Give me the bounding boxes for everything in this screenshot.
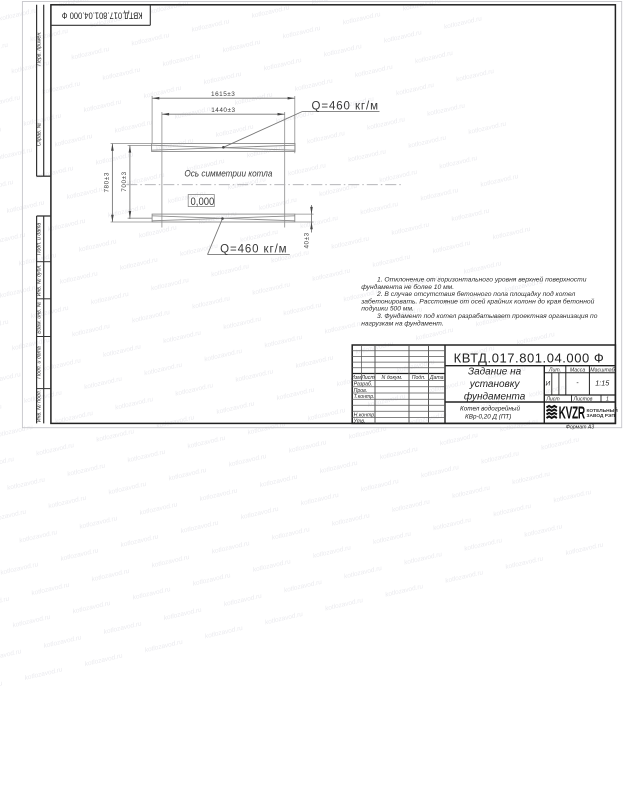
svg-text:Формат А3: Формат А3 (566, 425, 594, 430)
svg-text:700±3: 700±3 (121, 171, 128, 191)
svg-text:ЗАВОД РЭП: ЗАВОД РЭП (587, 413, 616, 419)
svg-text:Листов: Листов (573, 396, 593, 402)
svg-text:1:15: 1:15 (595, 379, 610, 388)
svg-text:1: 1 (606, 396, 609, 402)
svg-text:Q=460 кг/м: Q=460 кг/м (220, 244, 287, 256)
svg-text:1615±3: 1615±3 (211, 91, 235, 98)
svg-text:подушки 500 мм.: подушки 500 мм. (361, 305, 414, 313)
svg-text:Ось симметрии котла: Ось симметрии котла (184, 168, 272, 178)
svg-text:Лист: Лист (545, 396, 560, 402)
svg-text:40±3: 40±3 (303, 232, 310, 248)
svg-text:Н.контр.: Н.контр. (354, 412, 376, 418)
svg-text:Подп. и дата: Подп. и дата (36, 223, 42, 256)
svg-text:Т.контр.: Т.контр. (354, 394, 375, 400)
svg-text:Котел водогрейный: Котел водогрейный (460, 405, 520, 413)
svg-text:Дата: Дата (429, 375, 444, 381)
svg-text:Взам. инв. №: Взам. инв. № (36, 301, 42, 333)
svg-text:Перв. примен.: Перв. примен. (36, 31, 42, 65)
svg-text:установку: установку (469, 379, 521, 390)
svg-text:нагрузкам на фундамент.: нагрузкам на фундамент. (361, 320, 444, 328)
svg-text:2. В случае отсутствия бетонно: 2. В случае отсутствия бетонного пола пл… (376, 290, 575, 298)
svg-text:Инв. № дубл.: Инв. № дубл. (36, 264, 42, 296)
svg-text:КВТД.017.801.04.000 Ф: КВТД.017.801.04.000 Ф (454, 350, 605, 365)
svg-text:780±3: 780±3 (104, 172, 111, 192)
svg-text:N докум.: N докум. (382, 375, 403, 381)
svg-text:Q=460 кг/м: Q=460 кг/м (312, 101, 379, 113)
svg-text:КВТД.017.801.04.000 Ф: КВТД.017.801.04.000 Ф (62, 10, 143, 21)
svg-text:KVZR: KVZR (559, 404, 586, 424)
svg-text:Подп. и дата: Подп. и дата (36, 346, 42, 379)
svg-text:1440±3: 1440±3 (211, 107, 235, 114)
svg-text:Пров.: Пров. (354, 388, 368, 394)
svg-text:КВр-0,20 Д (ПТ): КВр-0,20 Д (ПТ) (465, 413, 511, 420)
svg-text:Подп.: Подп. (412, 375, 426, 381)
svg-text:Задание на: Задание на (468, 367, 522, 378)
svg-text:Справ. №: Справ. № (36, 122, 42, 146)
svg-text:Утв.: Утв. (354, 418, 366, 424)
svg-text:Инв. № подл.: Инв. № подл. (36, 390, 42, 422)
svg-text:0,000: 0,000 (191, 196, 215, 208)
svg-text:забетонировать. Расстояние от: забетонировать. Расстояние от осей крайн… (360, 297, 594, 305)
svg-text:И: И (545, 380, 550, 387)
svg-text:Лит.: Лит. (548, 367, 561, 373)
svg-text:Масса: Масса (570, 367, 585, 373)
svg-text:фундамента: фундамента (464, 391, 526, 403)
svg-text:Лист: Лист (360, 375, 375, 381)
svg-text:Масштаб: Масштаб (590, 367, 615, 373)
svg-text:3. Фундамент под котел разраба: 3. Фундамент под котел разрабатывает про… (377, 312, 598, 320)
svg-text:КОТЕЛЬНЫЙ: КОТЕЛЬНЫЙ (587, 406, 619, 414)
svg-text:фундамента не более 10 мм.: фундамента не более 10 мм. (361, 283, 454, 291)
svg-text:Разраб.: Разраб. (354, 382, 373, 388)
svg-text:1. Отклонение от горизонтально: 1. Отклонение от горизонтального уровня … (377, 275, 587, 283)
svg-text:-: - (576, 380, 579, 387)
